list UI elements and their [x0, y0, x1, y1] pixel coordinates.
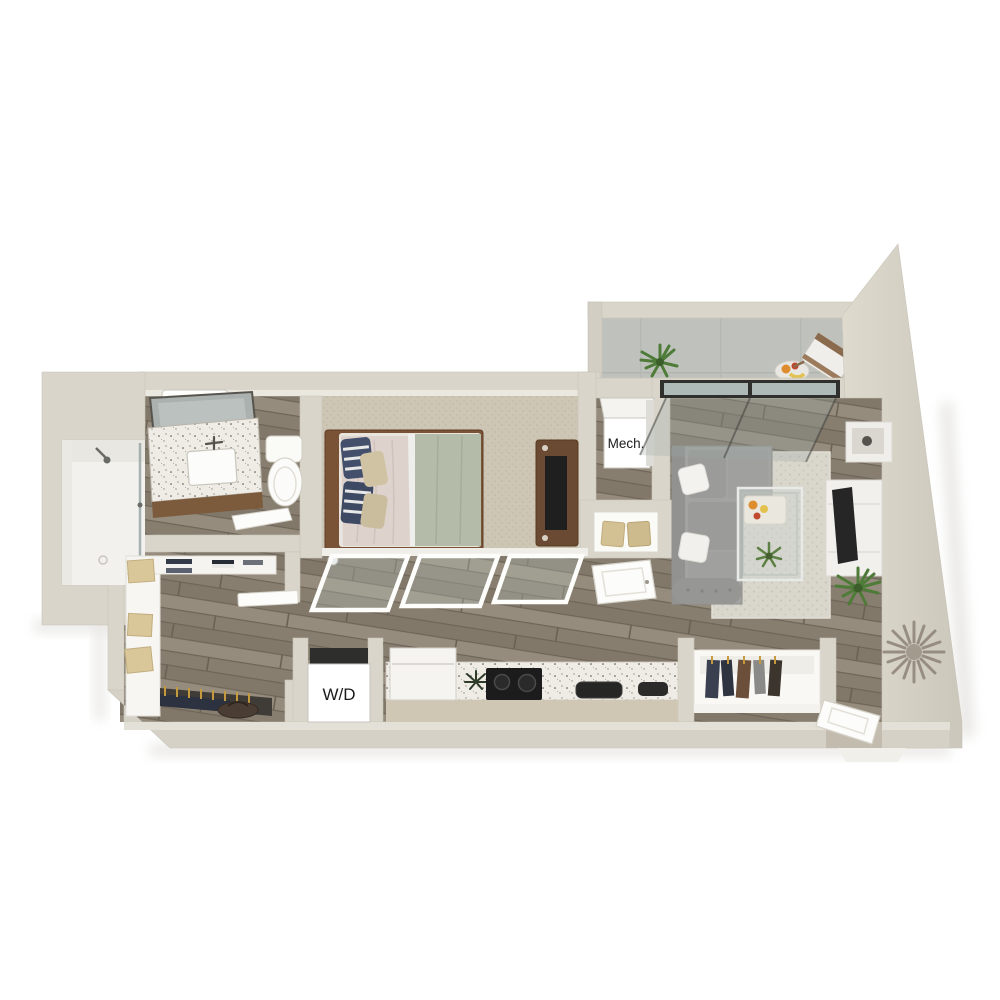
cooktop-item: [638, 682, 668, 696]
tv-console: [826, 480, 882, 576]
wd-label: W/D: [322, 685, 355, 704]
floorplan-image: Mech.: [0, 0, 1000, 1000]
media-console: [536, 440, 578, 546]
floorplan-svg: Mech.: [0, 0, 1000, 1000]
balcony-left-wall: [588, 302, 602, 382]
balcony-sliding-door: [640, 380, 840, 462]
range: [486, 668, 542, 700]
duffel-bag: [218, 702, 258, 718]
throw-pillow: [677, 463, 710, 496]
desk-nook: [594, 512, 658, 552]
bedroom: [312, 430, 588, 610]
side-table: [846, 422, 892, 462]
vanity: [148, 390, 263, 518]
fridge: [390, 648, 456, 700]
coat-closet: [694, 650, 820, 713]
kitchen-sink: [576, 682, 622, 698]
wall-medallion: [884, 622, 944, 682]
toilet: [266, 436, 302, 506]
sliding-doors: [312, 548, 588, 610]
shower-handle: [138, 503, 143, 508]
mech-unit: Mech.: [600, 398, 654, 468]
entry-step: [838, 748, 906, 762]
coat-closet-clothes: [705, 656, 782, 698]
duvet: [413, 434, 481, 546]
throw-pillow: [678, 532, 710, 563]
sofa-arm: [672, 578, 742, 604]
washer-dryer-top: [310, 648, 368, 664]
wd-closet: W/D: [308, 648, 370, 722]
vanity-sink: [187, 448, 237, 485]
closet-door: [238, 590, 299, 606]
mech-label: Mech.: [608, 436, 645, 451]
bed: [325, 430, 483, 550]
storage-boxes: [125, 559, 155, 673]
kitchen-cabinets: [386, 700, 678, 722]
coffee-table: [738, 488, 802, 580]
bedroom-door: [592, 560, 656, 604]
bedroom-tv: [545, 456, 567, 530]
balcony-back-wall: [588, 302, 860, 318]
